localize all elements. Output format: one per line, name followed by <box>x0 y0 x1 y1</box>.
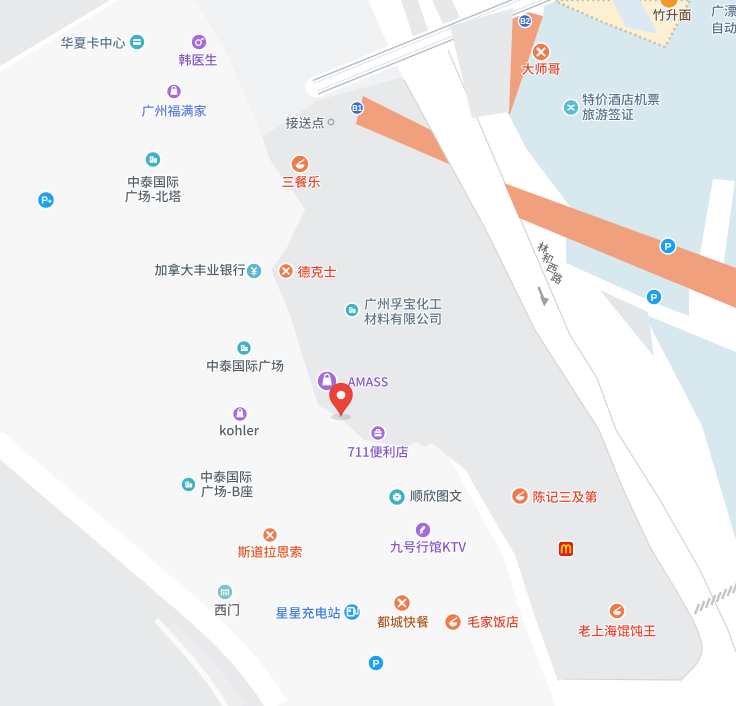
svg-text:B1: B1 <box>352 104 362 113</box>
svg-text:P: P <box>650 292 657 304</box>
svg-text:B2: B2 <box>520 17 530 26</box>
svg-text:P: P <box>664 241 671 253</box>
svg-text:P: P <box>372 658 379 670</box>
svg-text:P: P <box>41 196 48 207</box>
